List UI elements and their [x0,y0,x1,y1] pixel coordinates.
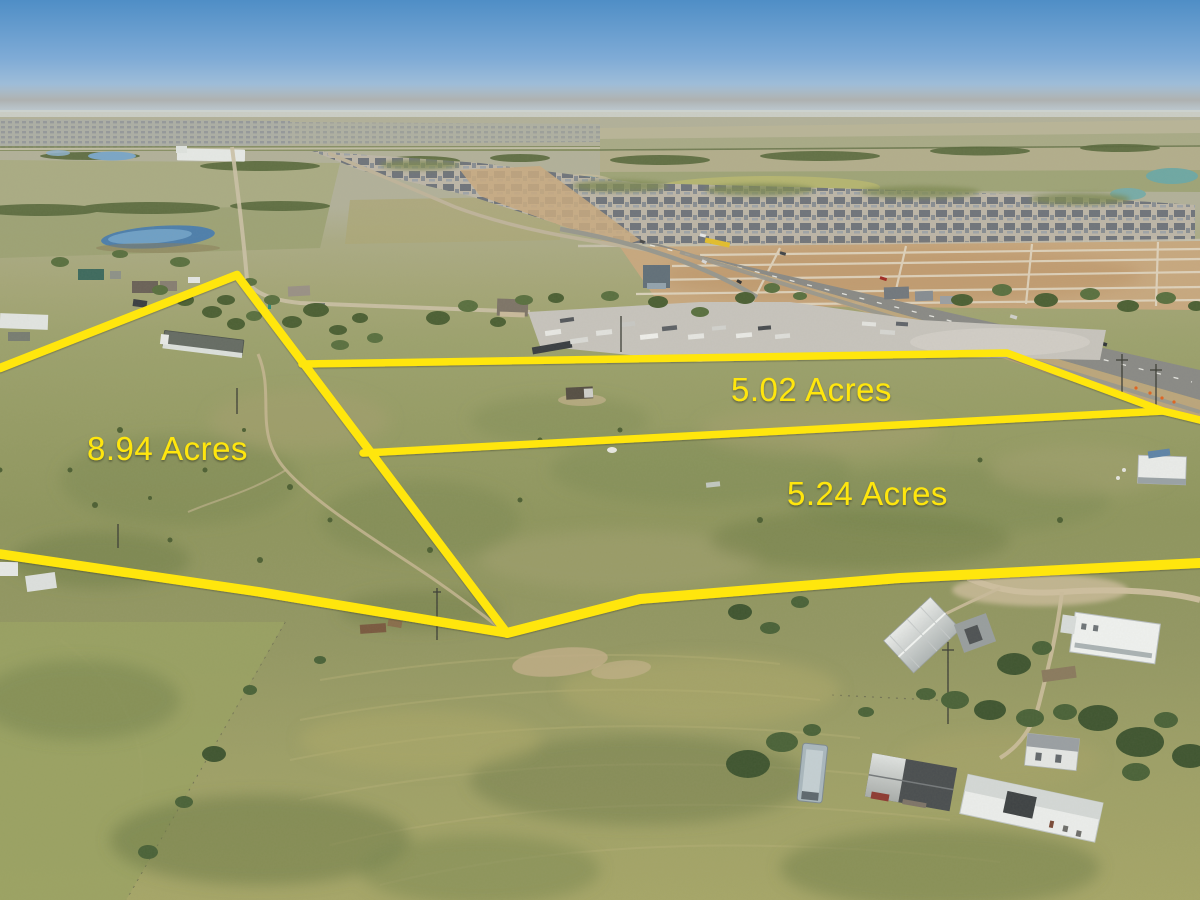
aerial-photo: 8.94 Acres 5.02 Acres 5.24 Acres [0,0,1200,900]
photo-grain [0,112,1200,900]
label-parcel-894: 8.94 Acres [87,430,248,467]
aerial-photo-canvas: 8.94 Acres 5.02 Acres 5.24 Acres [0,0,1200,900]
label-parcel-502: 5.02 Acres [731,371,892,408]
label-parcel-524: 5.24 Acres [787,475,948,512]
